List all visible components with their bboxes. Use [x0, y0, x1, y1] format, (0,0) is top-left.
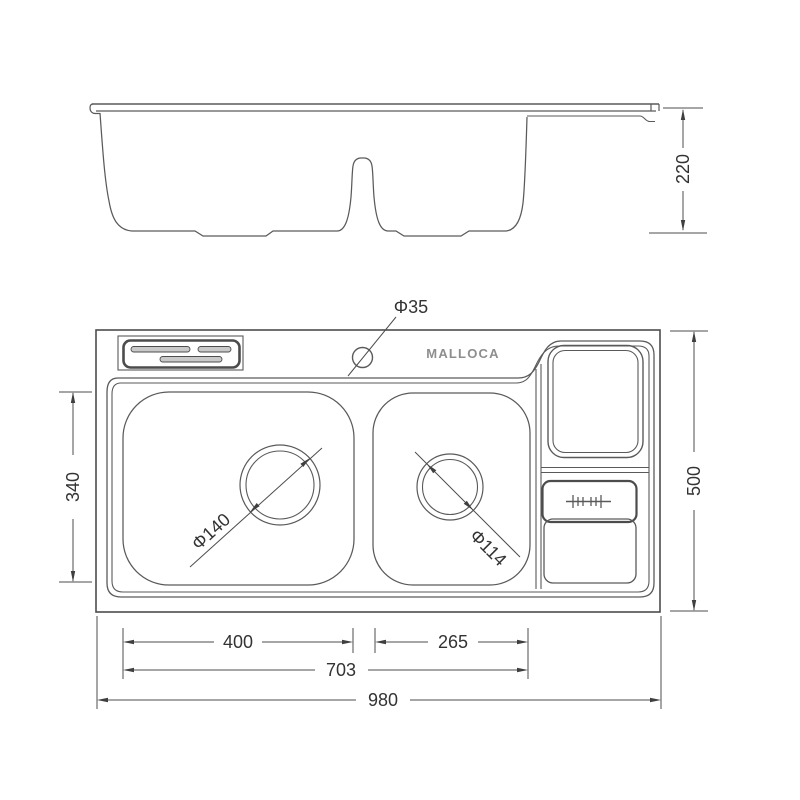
dim-220-label: 220 [673, 154, 693, 184]
faucet-leader-line [348, 317, 396, 376]
dim-340-arrow-down [71, 571, 75, 582]
dim-340: 340 [59, 392, 92, 582]
right-drain: Φ114 [415, 452, 520, 570]
faucet-hole-label: Φ35 [394, 297, 428, 317]
side-rim-right-cap [651, 104, 659, 111]
dim-340-label: 340 [63, 472, 83, 502]
dim-703: 703 [123, 660, 528, 680]
dim-340-arrow-up [71, 392, 75, 403]
side-rim-right-lip [527, 116, 655, 122]
dim-500-label: 500 [684, 466, 704, 496]
tray-slot-2 [198, 347, 231, 353]
accessory-column-divider [536, 364, 541, 589]
dim-220-arrow-up [681, 109, 685, 120]
dim-703-arrow-right [517, 668, 528, 672]
dim-220: 220 [649, 108, 707, 233]
dim-265: 265 [375, 632, 528, 652]
sink-technical-drawing-page: 220 Φ35 MALLOCA [0, 0, 800, 800]
dim-500: 500 [670, 331, 708, 611]
dim-703-label: 703 [326, 660, 356, 680]
inner-rim-inner [112, 346, 649, 592]
side-bowl-profile [100, 113, 527, 236]
right-drain-label: Φ114 [466, 525, 511, 570]
dim-980-label: 980 [368, 690, 398, 710]
dim-400: 400 [123, 632, 353, 652]
tray-slot-3 [160, 357, 222, 363]
dim-265-label: 265 [438, 632, 468, 652]
dim-980-arrow-left [97, 698, 108, 702]
dim-500-arrow-up [692, 331, 696, 342]
dim-220-arrow-down [681, 220, 685, 231]
dim-400-arrow-right [342, 640, 353, 644]
brand-label: MALLOCA [426, 346, 499, 361]
tray-slot-1 [131, 347, 190, 353]
dim-980-arrow-right [650, 698, 661, 702]
dim-265-arrow-right [517, 640, 528, 644]
plan-view: Φ35 MALLOCA [59, 297, 708, 710]
dim-500-arrow-down [692, 600, 696, 611]
accessory-lower-box [544, 519, 636, 583]
accessory-basin-inner [553, 351, 638, 453]
drain-grate-icon [566, 495, 611, 508]
side-view: 220 [90, 104, 707, 236]
tray-inner-rect [124, 341, 240, 368]
plan-outer-body [96, 330, 660, 612]
dim-400-label: 400 [223, 632, 253, 652]
accessory-basin-outer [548, 346, 643, 458]
tray [118, 336, 243, 370]
accessory-drain-section [543, 481, 637, 583]
dim-265-arrow-left [375, 640, 386, 644]
dim-400-arrow-left [123, 640, 134, 644]
accessory-compartment-divider [541, 468, 649, 473]
side-rim-left-hook [90, 104, 100, 114]
left-drain: Φ140 [188, 445, 322, 567]
inner-rim-outer [107, 341, 654, 597]
left-drain-label: Φ140 [188, 509, 234, 554]
dim-980: 980 [97, 690, 661, 710]
sink-technical-drawing: 220 Φ35 MALLOCA [0, 0, 800, 800]
dim-703-arrow-left [123, 668, 134, 672]
